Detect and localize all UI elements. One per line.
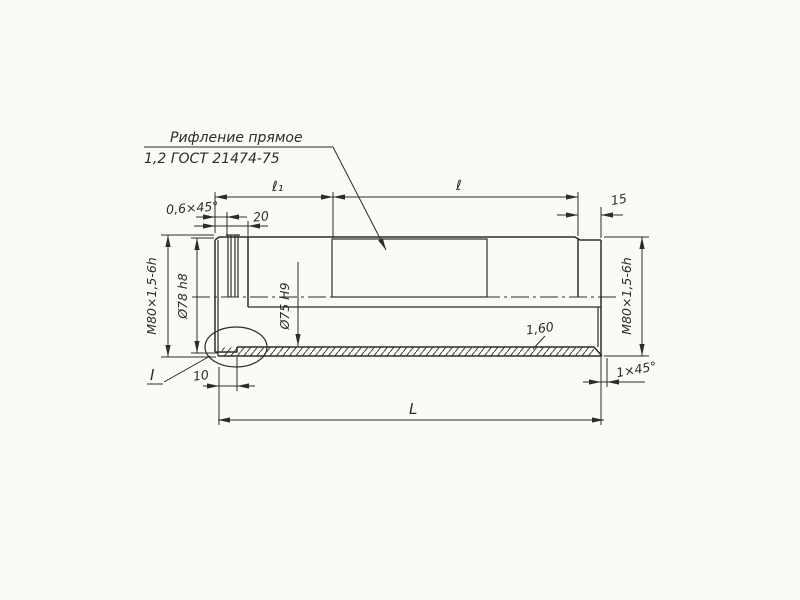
dim-15-label: 15 xyxy=(610,191,628,209)
labels: Рифление прямое 1,2 ГОСТ 21474-75 ℓ₁ ℓ 0… xyxy=(144,130,658,418)
knurl-note-line1: Рифление прямое xyxy=(170,130,303,146)
dim-wall-label: 1,60 xyxy=(525,319,555,338)
drawing-canvas: Рифление прямое 1,2 ГОСТ 21474-75 ℓ₁ ℓ 0… xyxy=(0,0,800,600)
knurl-area xyxy=(332,239,487,297)
dim-10-label: 10 xyxy=(192,367,210,384)
tube-wall-section xyxy=(218,347,602,356)
dim-d75-label: Ø75 Н9 xyxy=(277,282,292,330)
dim-total-length-label: L xyxy=(409,400,417,418)
dim-l1-label: ℓ₁ xyxy=(271,179,283,195)
dim-thread-left-label: М80×1,5-6h xyxy=(144,257,159,335)
dim-20-label: 20 xyxy=(252,208,269,225)
extension-lines xyxy=(161,192,649,425)
dim-chamfer-right-label: 1×45° xyxy=(615,358,658,380)
technical-drawing: Рифление прямое 1,2 ГОСТ 21474-75 ℓ₁ ℓ 0… xyxy=(0,0,800,600)
dim-l-label: ℓ xyxy=(455,178,462,194)
part-outline xyxy=(192,235,618,367)
detail-label: I xyxy=(150,366,155,384)
thread-relief-left xyxy=(226,235,248,307)
dim-d78-label: Ø78 h8 xyxy=(175,273,190,320)
dim-chamfer-left-label: 0,6×45° xyxy=(166,198,219,217)
dim-thread-right-label: М80×1,5-6h xyxy=(619,257,634,335)
knurl-note-line2: 1,2 ГОСТ 21474-75 xyxy=(144,151,280,167)
